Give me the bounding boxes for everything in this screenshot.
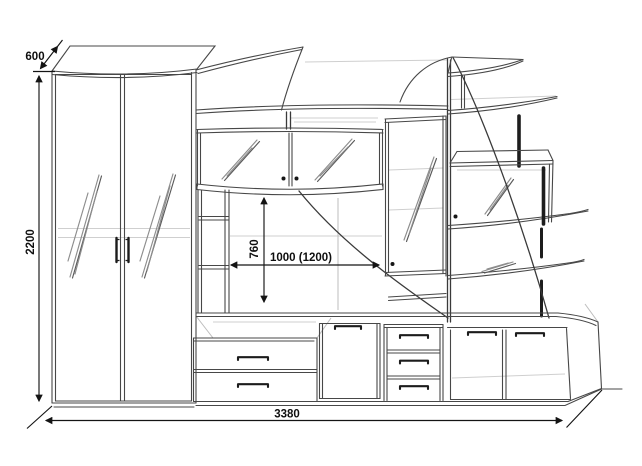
cabinet-door-handle — [468, 332, 496, 335]
upper-glass-cabinet — [197, 128, 383, 195]
base-right-end-panel — [598, 322, 602, 389]
drawer-handle — [238, 384, 268, 387]
tall-glass-door — [385, 116, 446, 276]
upper-cabinet-door-divider — [289, 133, 292, 186]
faint-interior-lines — [58, 60, 598, 378]
tower-left-panel — [448, 59, 451, 322]
cabinet-door-handle — [516, 333, 544, 336]
niche-width-label: 1000 (1200) — [270, 252, 332, 264]
depth-label: 600 — [25, 51, 44, 63]
door-handle — [335, 326, 361, 329]
dimension-annotations: 600 2200 760 1000 (1200) 3380 — [25, 40, 602, 429]
curved-sail-top — [196, 47, 303, 110]
drawer-handle — [400, 361, 428, 364]
upper-cabinet-left-mirror-strip — [222, 140, 260, 181]
two-door-base-cabinet — [448, 328, 571, 400]
drawer-handle — [400, 335, 428, 338]
wall-unit-technical-drawing: 600 2200 760 1000 (1200) 3380 — [0, 0, 642, 466]
wardrobe-right-door-mirror-strip — [140, 174, 176, 278]
base-cabinets — [194, 313, 623, 406]
upper-cabinet-curved-shelf — [197, 184, 383, 189]
tall-door-knob — [391, 262, 395, 266]
shelf-support-bracket — [287, 112, 291, 129]
wardrobe-door-handles — [117, 238, 129, 262]
glass-box-mirror-strip — [485, 178, 514, 216]
wardrobe-top-surface — [52, 46, 215, 74]
niche-left-column — [225, 190, 229, 313]
drawer-handle — [238, 357, 268, 360]
dimension-total-width-3380: 3380 — [27, 390, 602, 429]
dimension-height-2200: 2200 — [25, 76, 39, 401]
niche-height-label: 760 — [249, 239, 261, 258]
tv-niche-section — [198, 116, 448, 318]
base-countertop — [196, 313, 598, 322]
furniture-drawing-stage: 600 2200 760 1000 (1200) 3380 — [0, 0, 642, 466]
glass-box-knob — [454, 215, 458, 219]
upper-cabinet-right-mirror-strip — [315, 139, 355, 182]
tower-shelf-4 — [448, 260, 584, 280]
middle-base-door — [320, 324, 381, 399]
three-drawer-stack — [384, 325, 443, 401]
drawer-handle — [400, 386, 428, 389]
upper-cabinet-left-door-knob — [282, 177, 286, 181]
two-drawer-unit — [194, 338, 318, 402]
tower-top-shelf — [448, 57, 523, 77]
upper-cabinet-right-door-knob — [295, 177, 299, 181]
tower-glass-box — [450, 150, 553, 222]
wardrobe-left-door-mirror-strip — [68, 175, 102, 278]
height-label: 2200 — [25, 229, 37, 255]
wardrobe — [52, 46, 215, 407]
shelving-tower — [448, 57, 589, 322]
right-sail-curve — [400, 57, 452, 102]
dimension-niche-height-760: 760 — [249, 198, 264, 302]
total-width-label: 3380 — [274, 409, 300, 421]
